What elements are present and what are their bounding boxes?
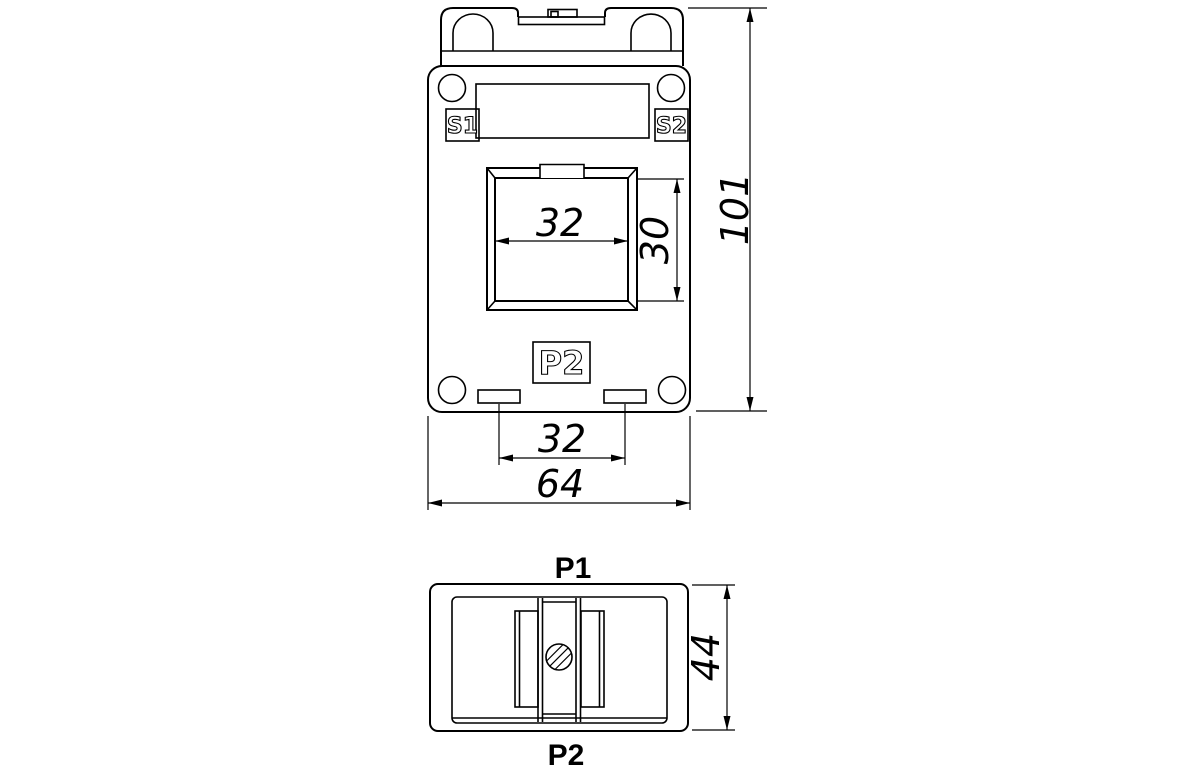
arrow-up-icon [747, 8, 754, 22]
arrow-down-icon [747, 397, 754, 411]
drawing-canvas: S1 S2 P2 32 [0, 0, 1185, 777]
front-view: S1 S2 P2 32 [428, 8, 767, 510]
screw-hatch-3 [547, 645, 563, 661]
window-chamfer-tl [487, 168, 495, 178]
arrow-right-icon [676, 500, 690, 507]
block-right-outline [581, 611, 604, 707]
dim-overall-height: 101 [688, 8, 767, 411]
terminal-block-left [515, 611, 538, 707]
bracket-clip-bar [519, 17, 605, 25]
dim-window-width: 32 [495, 201, 628, 245]
terminal-block-right [581, 611, 604, 707]
dim-overall-height-value: 101 [713, 173, 757, 246]
dim-depth: 44 [684, 585, 735, 730]
window-chamfer-tr [628, 168, 637, 178]
side-view: P1 [430, 552, 735, 772]
arrow-right-icon [611, 455, 625, 462]
bracket-arch-right [631, 14, 671, 51]
dim-slot-spacing: 32 [499, 404, 625, 465]
dim-window-height-value: 30 [633, 216, 677, 264]
arrow-right-icon [614, 238, 628, 245]
dim-window-height: 30 [633, 179, 684, 301]
arrow-up-icon [674, 179, 681, 193]
technical-drawing-page: S1 S2 P2 32 [0, 0, 1185, 777]
nameplate [476, 84, 649, 138]
side-inner-outline [452, 597, 667, 723]
screw-hatch-2 [555, 653, 572, 670]
center-rail-channel [538, 598, 581, 722]
label-p1: P1 [555, 552, 592, 585]
terminal-marker-s2: S2 [655, 109, 688, 141]
corner-hole-bottom-right [659, 377, 686, 404]
window-top-key-tab [540, 165, 584, 179]
terminal-marker-s1: S1 [446, 109, 479, 141]
dim-slot-spacing-value: 32 [538, 417, 586, 461]
corner-hole-top-left [439, 75, 466, 102]
arrow-up-icon [724, 585, 731, 599]
arrow-left-icon [499, 455, 513, 462]
dim-depth-value: 44 [684, 633, 728, 681]
arrow-left-icon [495, 238, 509, 245]
dim-overall-width-value: 64 [536, 462, 584, 506]
mounting-slot-right [604, 390, 646, 403]
window-chamfer-br [628, 301, 637, 310]
screw-hatch-1 [550, 648, 568, 666]
arrow-down-icon [724, 716, 731, 730]
arrow-down-icon [674, 287, 681, 301]
din-rail-bracket [441, 8, 683, 66]
arrow-left-icon [428, 500, 442, 507]
mounting-slot-left [478, 390, 520, 403]
bracket-clip-tab [548, 10, 577, 18]
window-chamfer-bl [487, 301, 495, 310]
bracket-clip-tab-slot [551, 12, 558, 18]
clamp-screw [546, 644, 572, 670]
terminal-s2-label: S2 [656, 114, 687, 139]
label-p2: P2 [548, 739, 585, 772]
corner-hole-top-right [658, 75, 685, 102]
bracket-arch-left [453, 14, 493, 51]
block-left-outline [515, 611, 538, 707]
corner-hole-bottom-left [439, 377, 466, 404]
terminal-s1-label: S1 [447, 114, 478, 139]
terminal-marker-p2: P2 [533, 342, 590, 383]
terminal-p2-label: P2 [539, 344, 585, 382]
dim-window-width-value: 32 [536, 201, 584, 245]
